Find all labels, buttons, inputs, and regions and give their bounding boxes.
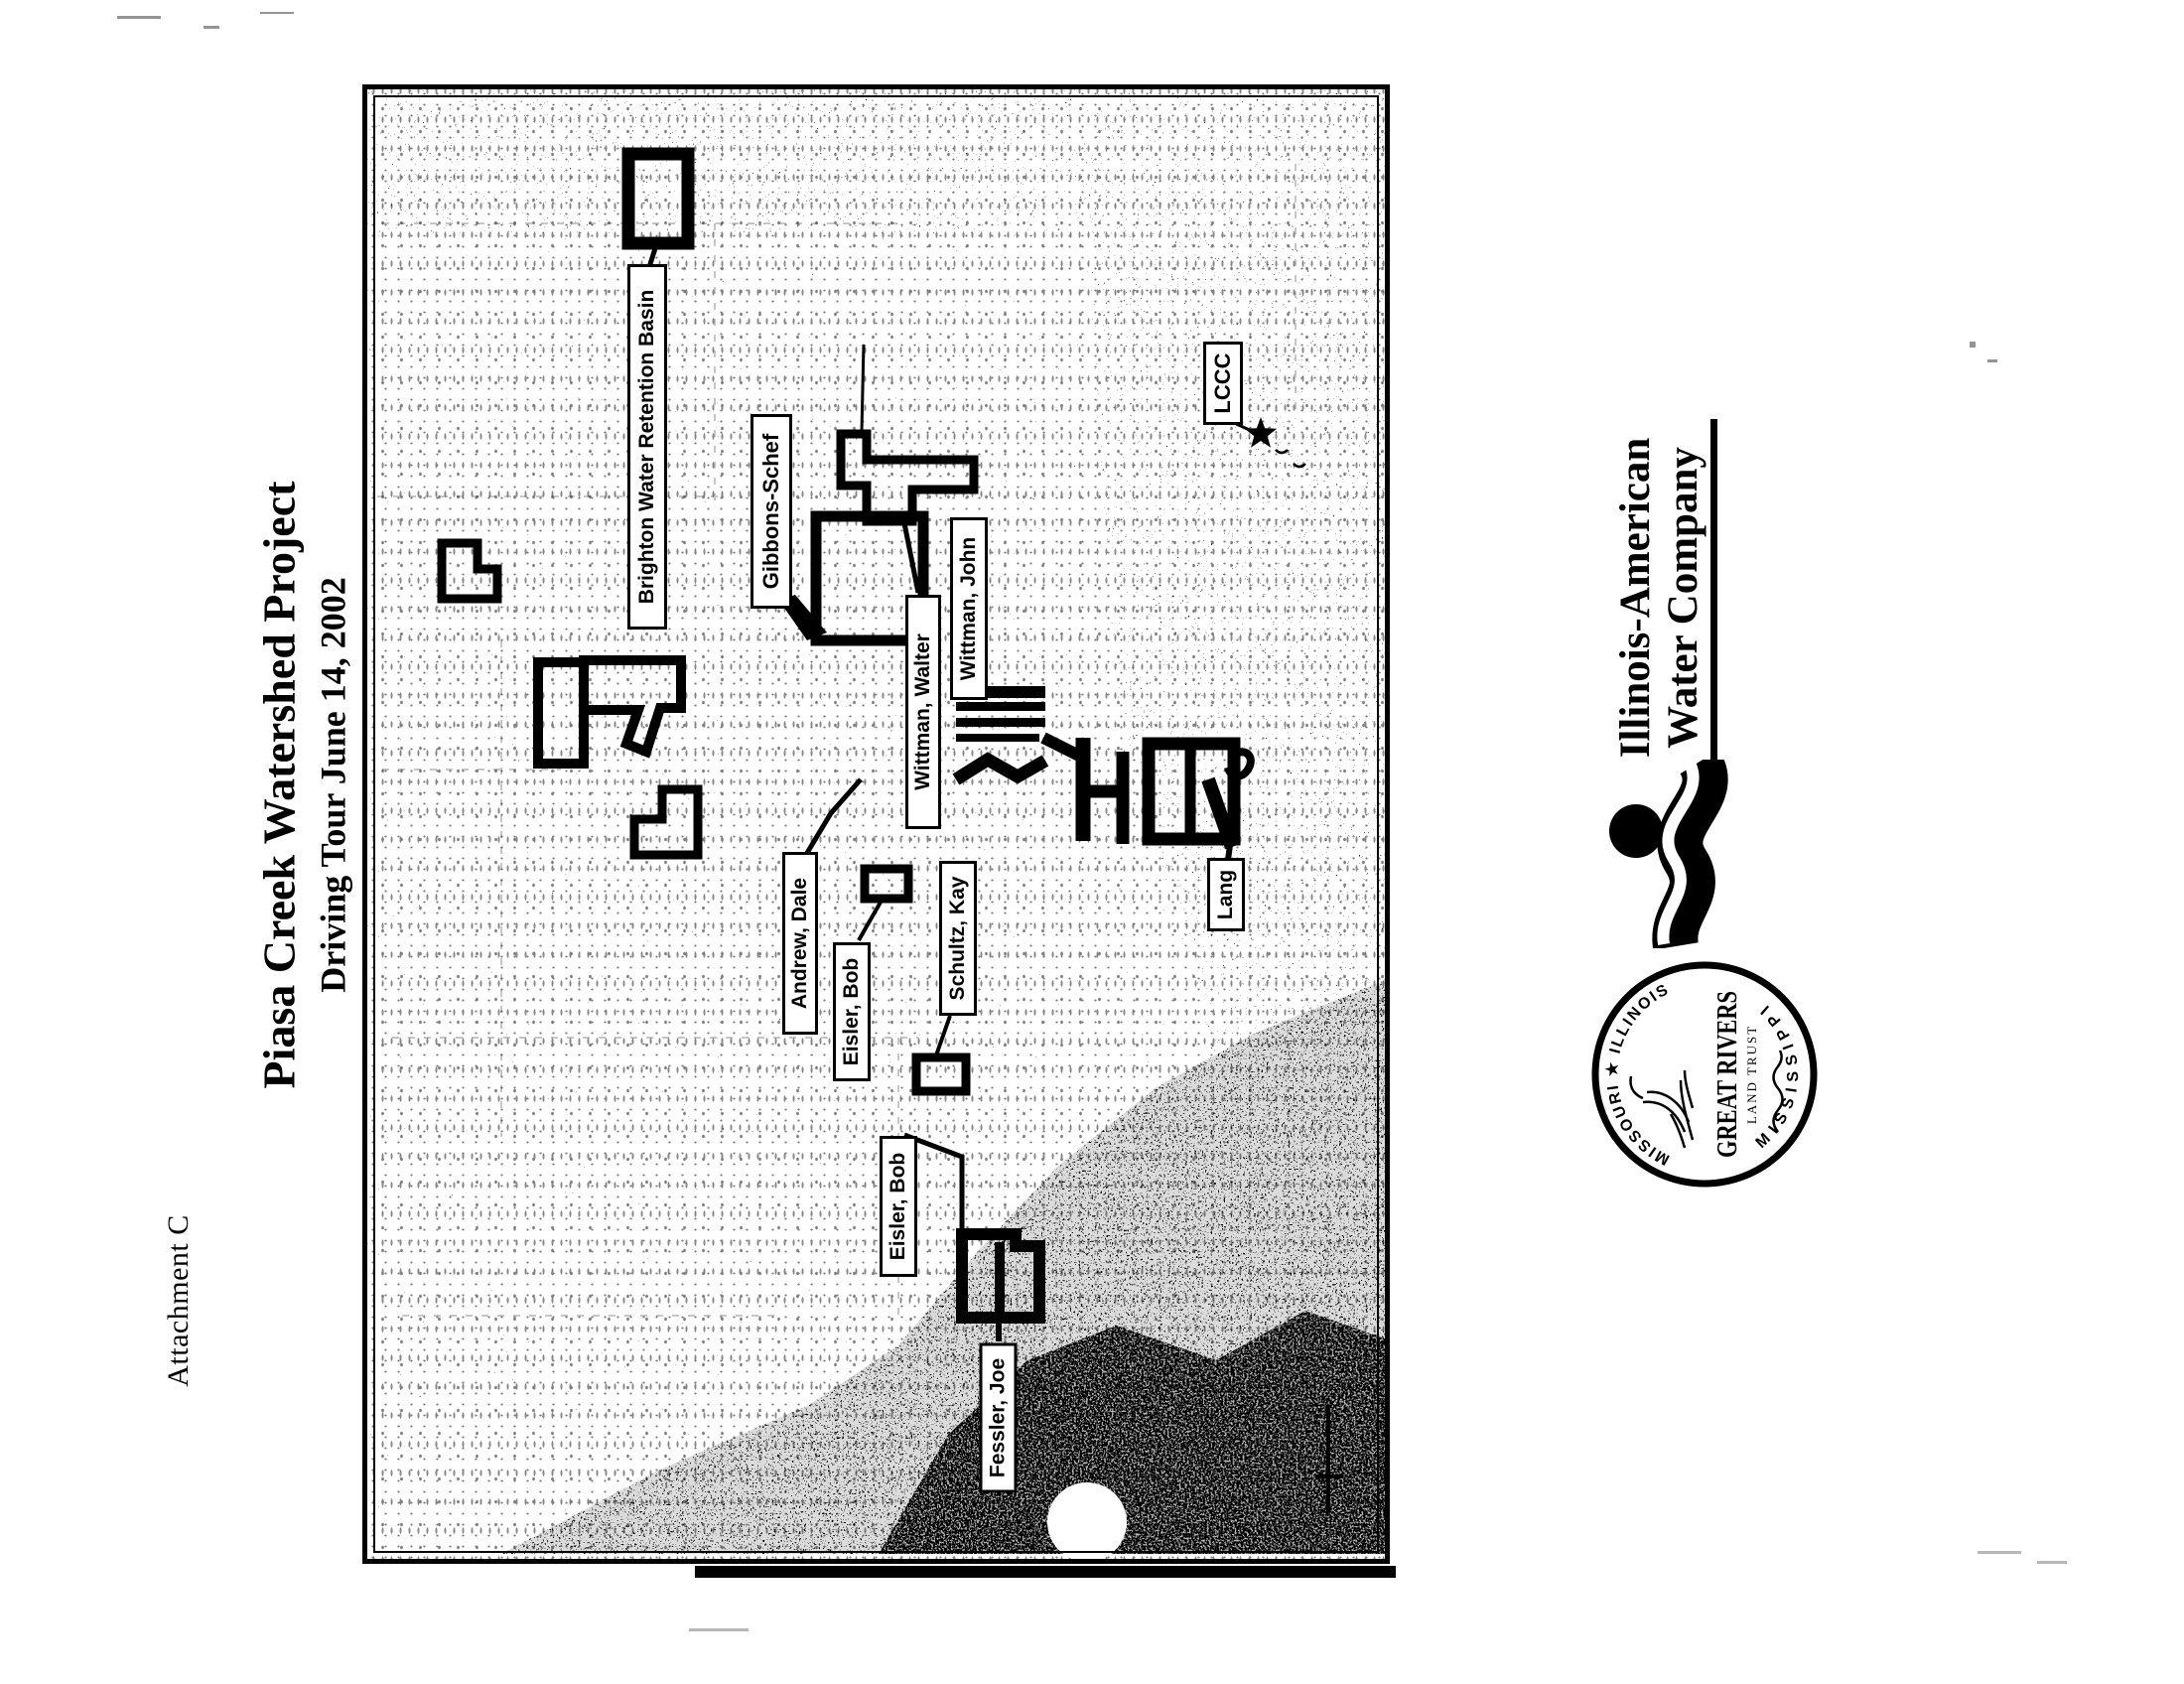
watershed-map: Brighton Water Retention BasinGibbons-Sc… [362,84,1390,1564]
parcel-label-gibbons-schef: Gibbons-Schef [751,414,792,609]
parcel-label-schultz-kay: Schultz, Kay [939,861,977,1016]
scan-artifact [1987,359,1997,362]
parcel-label-lccc: LCCC [1203,342,1243,425]
seal-name: GREAT RIVERS [1712,991,1743,1158]
seal-ring-text-bottom: MISSISSIPPI [1753,997,1803,1152]
parcel-label-fessler-joe: Fessler, Joe [979,1343,1017,1493]
parcel-label-lang: Lang [1207,858,1245,931]
map-labels: Brighton Water Retention BasinGibbons-Sc… [362,84,1390,1564]
water-company-logo: Illinois-American Water Company [1612,419,1715,776]
parcel-label-brighton-water-retention-basin: Brighton Water Retention Basin [627,264,667,630]
svg-text:MISSISSIPPI: MISSISSIPPI [1753,997,1803,1152]
scan-artifact [260,12,294,14]
scan-artifact [117,16,161,19]
scan-artifact [2037,1561,2067,1564]
parcel-label-eisler-bob-2: Eisler, Bob [880,1136,917,1277]
document-subtitle: Driving Tour June 14, 2002 [309,428,358,1143]
scan-artifact [689,1628,749,1631]
attachment-label: Attachment C [159,1196,199,1405]
document-title: Piasa Creek Watershed Project [251,428,309,1143]
water-company-name-line2: Water Company [1660,419,1717,776]
scan-artifact [1970,342,1976,348]
scan-artifact [1978,1551,2021,1554]
parcel-label-wittman-john: Wittman, John [950,517,988,700]
water-swoosh-icon [1600,760,1749,948]
water-dot-icon [1609,804,1663,858]
parcel-label-andrew-dale: Andrew, Dale [782,852,818,1035]
document-title-block: Piasa Creek Watershed Project Driving To… [251,428,365,1143]
scan-artifact [204,26,219,29]
parcel-label-eisler-bob-1: Eisler, Bob [833,942,871,1081]
scanned-page: Attachment C Piasa Creek Watershed Proje… [0,0,2184,1684]
parcel-label-wittman-walter: Wittman, Walter [905,595,941,829]
water-company-name-line1: Illinois-American [1612,419,1660,776]
land-trust-seal: MISSOURI ★ ILLINOIS MISSISSIPPI GREAT RI… [1585,955,1824,1193]
scan-shadow-bar [695,1566,1396,1578]
seal-subtitle: LAND TRUST [1744,1025,1759,1124]
